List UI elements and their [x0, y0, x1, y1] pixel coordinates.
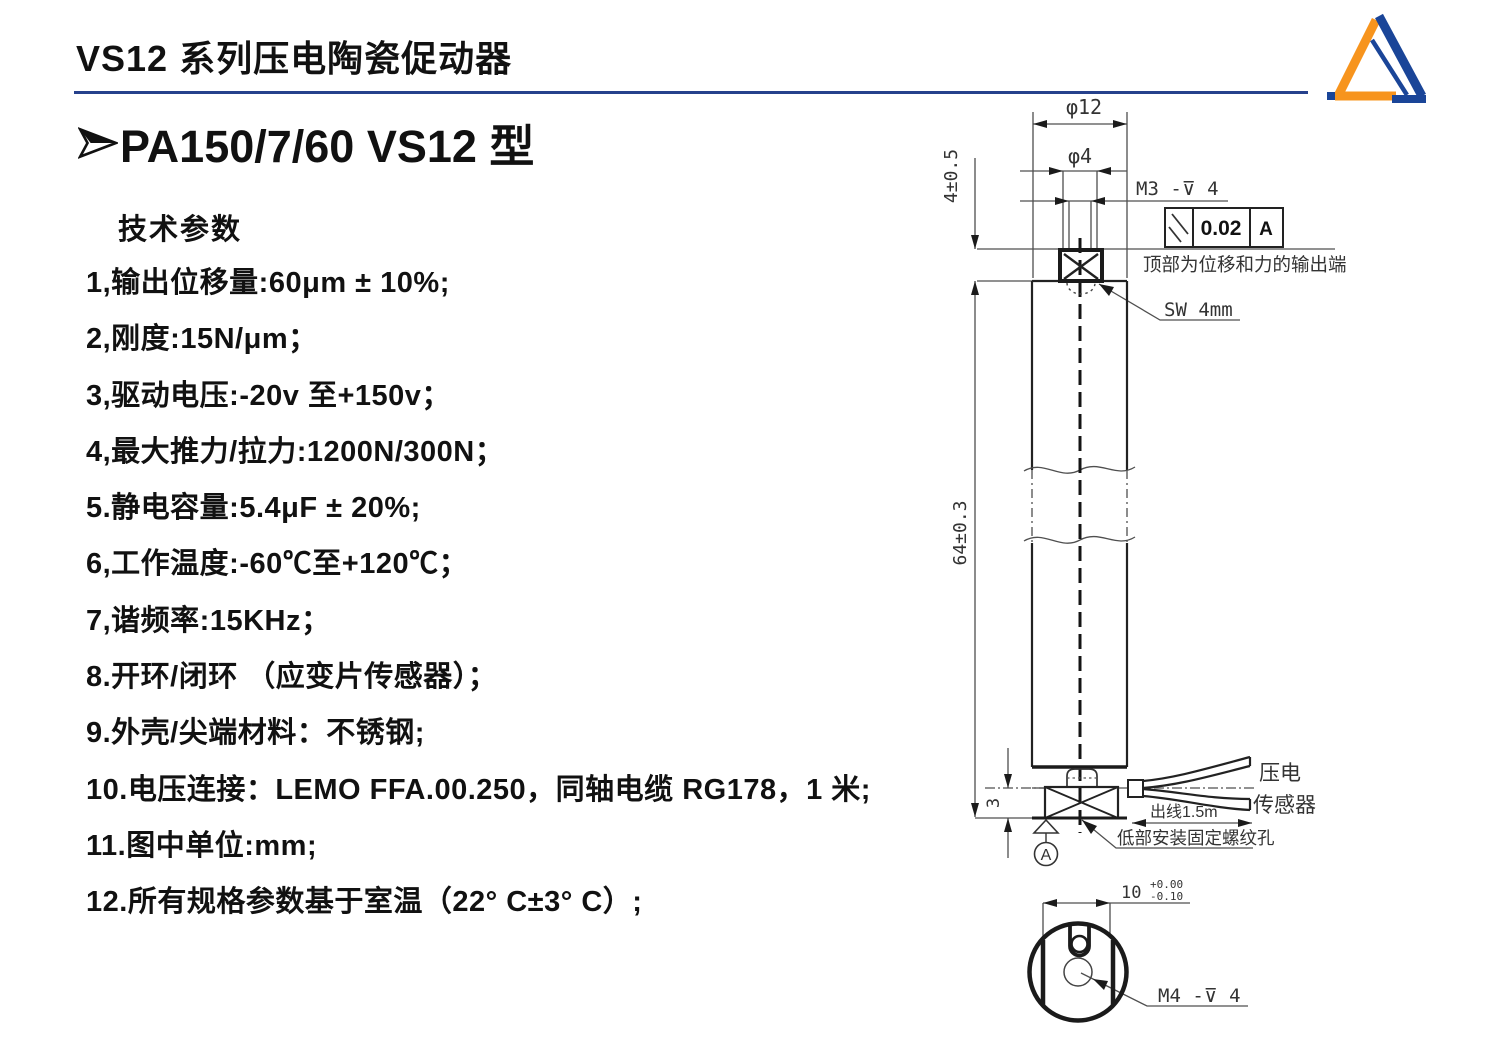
wrench-size-label: SW 4mm [1164, 299, 1233, 321]
spec-item: 5.静电容量:5.4μF ± 20%; [86, 480, 871, 536]
sensor-cables [1128, 757, 1250, 810]
section-heading: 技术参数 [118, 206, 242, 248]
technical-drawing: φ12 φ4 M3 -⊽ 4 0.02 A 顶部为位移和力的输出端 SW 4mm… [930, 95, 1370, 1061]
arrow-bullet-icon [78, 121, 118, 165]
cable-label-sensor: 传感器 [1253, 794, 1316, 817]
note-bottom-mount: 低部安装固定螺纹孔 [1117, 828, 1275, 848]
bottom-view-arrowheads [1043, 899, 1110, 990]
company-logo-icon [1326, 12, 1430, 106]
dim-base-height-label: 3 [984, 798, 1004, 808]
spec-item: 9.外壳/尖端材料：不锈钢; [86, 705, 871, 761]
spec-item: 6,工作温度:-60℃至+120℃； [86, 536, 871, 592]
datum-letter: A [1041, 847, 1052, 864]
dim-phi12-label: φ12 [1066, 95, 1102, 119]
slot-hole [1072, 936, 1088, 952]
cable-length-label: 出线1.5m [1150, 803, 1218, 821]
thread-bottom-label: M4 -⊽ 4 [1158, 985, 1241, 1007]
thread-top-label: M3 -⊽ 4 [1136, 178, 1219, 200]
note-top-output: 顶部为位移和力的输出端 [1143, 254, 1347, 275]
spec-item: 10.电压连接：LEMO FFA.00.250，同轴电缆 RG178，1 米; [86, 762, 871, 818]
cable-label-piezo: 压电 [1259, 762, 1301, 785]
dim-tip-height-label: 4±0.5 [941, 149, 962, 203]
spec-item: 1,输出位移量:60μm ± 10%; [86, 255, 871, 311]
m4-thread-hole [1064, 958, 1092, 986]
dim-across-flats-label: 10 [1121, 883, 1141, 903]
spec-item: 3,驱动电压:-20v 至+150v； [86, 368, 871, 424]
spec-item: 12.所有规格参数基于室温（22° C±3° C）; [86, 874, 871, 930]
page-title: VS12 系列压电陶瓷促动器 [76, 30, 512, 82]
datasheet-page: VS12 系列压电陶瓷促动器 PA150/7/60 VS12 型 技术参数 1,… [0, 0, 1500, 1061]
spec-item: 2,刚度:15N/μm； [86, 311, 871, 367]
spec-item: 8.开环/闭环 （应变片传感器）； [86, 649, 871, 705]
tolerance-lower: -0.10 [1150, 890, 1183, 903]
fcf-datum-letter: A [1259, 219, 1273, 240]
fcf-tolerance-value: 0.02 [1201, 217, 1242, 240]
title-separator [74, 91, 1308, 94]
spec-item: 7,谐频率:15KHz； [86, 593, 871, 649]
actuator-side-view [971, 112, 1335, 866]
spec-item: 4,最大推力/拉力:1200N/300N； [86, 424, 871, 480]
model-heading: PA150/7/60 VS12 型 [120, 110, 534, 175]
logo-orange-left-leg [1339, 20, 1376, 94]
dim-phi4-label: φ4 [1068, 144, 1092, 168]
specs-list: 1,输出位移量:60μm ± 10%; 2,刚度:15N/μm； 3,驱动电压:… [86, 255, 871, 931]
dim-body-height-label: 64±0.3 [950, 500, 971, 565]
spec-item: 11.图中单位:mm; [86, 818, 871, 874]
model-heading-row: PA150/7/60 VS12 型 [78, 110, 534, 175]
